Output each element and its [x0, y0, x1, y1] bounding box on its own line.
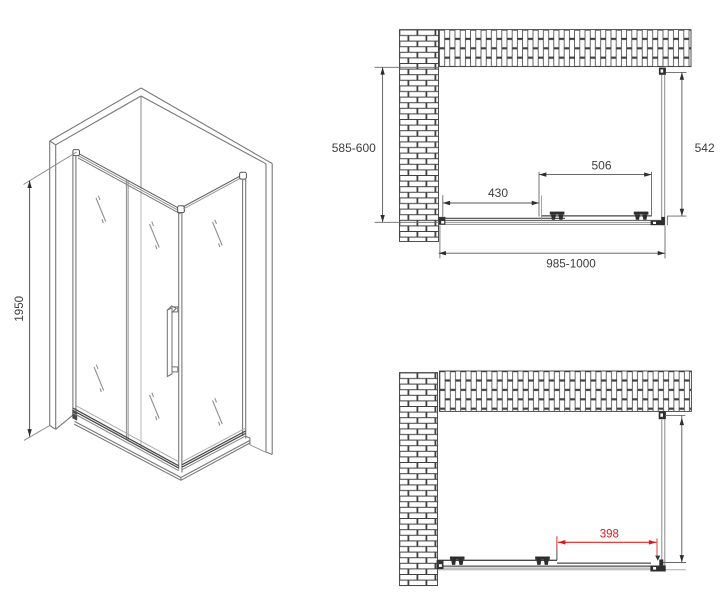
svg-text:398: 398: [600, 528, 619, 540]
svg-text:1950: 1950: [14, 296, 26, 322]
svg-text:985-1000: 985-1000: [546, 257, 596, 270]
svg-text:542: 542: [695, 141, 715, 155]
svg-text:430: 430: [488, 186, 508, 200]
svg-text:585-600: 585-600: [332, 141, 376, 155]
svg-text:506: 506: [591, 159, 611, 173]
